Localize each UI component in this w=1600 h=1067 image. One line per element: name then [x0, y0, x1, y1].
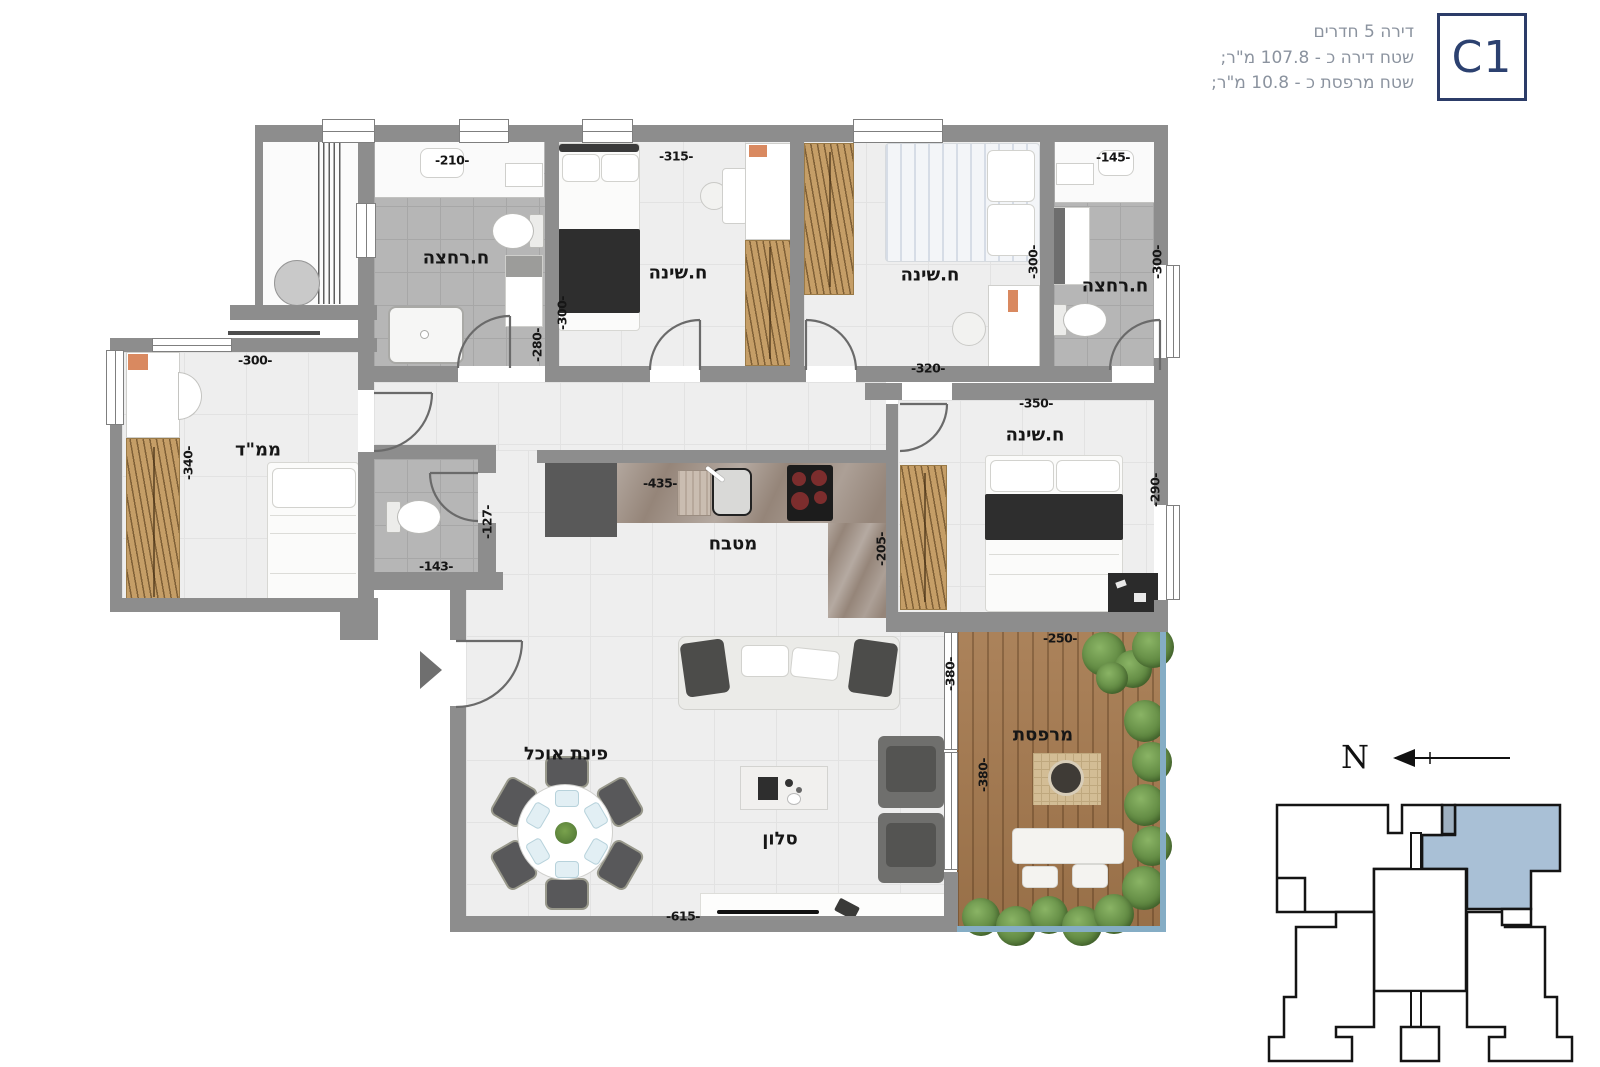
dim-bed2-w: -320- — [911, 361, 945, 376]
apartment-summary: דירה 5 חדרים שטח דירה כ - 107.8 מ"ר; שטח… — [1054, 20, 1414, 97]
dim-balcony-h: -380- — [976, 758, 991, 792]
dim-bed1-w: -315- — [659, 149, 693, 164]
dim-bath2-w: -145- — [1096, 150, 1130, 165]
living-label: סלון — [762, 829, 797, 850]
north-label: N — [1341, 738, 1369, 776]
dim-mamad-w: -300- — [238, 353, 272, 368]
dim-bed2-h: -300- — [1026, 245, 1041, 279]
bath1-label: ח.רחצה — [423, 248, 490, 269]
dim-kitchen-h: -205- — [874, 532, 889, 566]
dim-wc-w: -143- — [419, 559, 453, 574]
summary-line-3: שטח מרפסת כ - 10.8 מ"ר; — [1054, 71, 1414, 97]
floor-plan-canvas: ח.רחצה ח.שינה ח.שינה ח.רחצה ממ"ד מטבח ח.… — [0, 0, 1600, 1067]
balcony-label: מרפסת — [1013, 725, 1073, 746]
dim-bath1-h: -280- — [530, 328, 545, 362]
dining-label: פינת אוכל — [524, 744, 608, 765]
master-label: ח.שינה — [1006, 425, 1065, 446]
dim-bed1-h: -300- — [555, 296, 570, 330]
dim-living-h: -380- — [943, 657, 958, 691]
dim-master-w: -350- — [1019, 396, 1053, 411]
bed1-label: ח.שינה — [649, 263, 708, 284]
kitchen-label: מטבח — [709, 534, 758, 555]
summary-line-1: דירה 5 חדרים — [1054, 20, 1414, 46]
bed2-label: ח.שינה — [901, 265, 960, 286]
dim-living-w: -615- — [666, 909, 700, 924]
unit-code-badge: C1 — [1437, 13, 1527, 101]
unit-code: C1 — [1452, 32, 1513, 83]
dim-wc-h: -127- — [480, 505, 495, 539]
dim-balcony-w: -250- — [1043, 631, 1077, 646]
dim-kitchen-w: -435- — [643, 476, 677, 491]
dim-bath2-h: -300- — [1150, 245, 1165, 279]
dim-master-h: -290- — [1148, 473, 1163, 507]
mamad-label: ממ"ד — [235, 440, 281, 461]
north-arrow-icon — [1385, 735, 1525, 781]
bath2-label: ח.רחצה — [1082, 276, 1149, 297]
dim-bath1-w: -210- — [435, 153, 469, 168]
key-plan — [1243, 778, 1579, 1067]
dim-mamad-h: -340- — [181, 446, 196, 480]
summary-line-2: שטח דירה כ - 107.8 מ"ר; — [1054, 46, 1414, 72]
